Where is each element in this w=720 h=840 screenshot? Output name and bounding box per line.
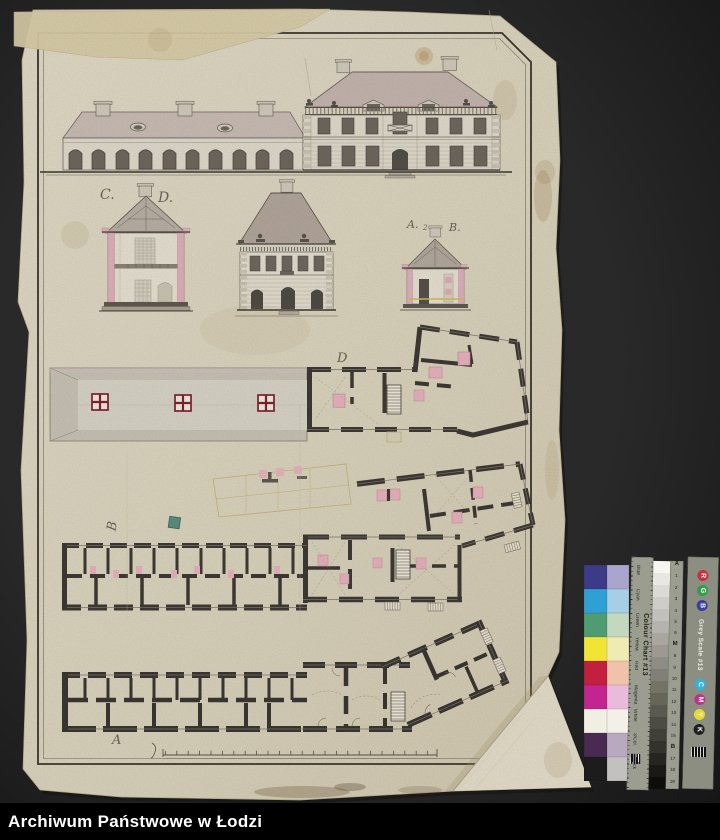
row-label: Cyan [632, 589, 640, 613]
scale-mark: 3 [669, 595, 682, 607]
archive-name: Archiwum Państwowe w Łodzi [0, 812, 262, 832]
saturated-patch-column [584, 565, 607, 781]
scale-mark: 6 [669, 629, 682, 641]
scale-mark: 4 [669, 607, 682, 619]
archival-scan-page: C. D. A. 2 B. D B A [0, 0, 720, 840]
row-label: Blue [633, 565, 641, 589]
scale-mark: 17 [666, 755, 679, 767]
scale-mark: 11 [668, 686, 681, 698]
cyan-dot-icon: C [695, 679, 706, 690]
scale-mark: 10 [668, 675, 681, 687]
scale-mark: 14 [667, 721, 680, 733]
caption-bar: Archiwum Państwowe w Łodzi [0, 803, 720, 840]
scale-mark: 8 [668, 652, 681, 664]
colour-chart-title: Colour Chart #13 [641, 613, 649, 676]
grey-scale-bar: R G B Grey Scale #13 C M Y K [682, 557, 719, 790]
row-label: Green [632, 613, 640, 637]
blue-dot-icon: B [697, 600, 708, 611]
scale-mark: 12 [667, 698, 680, 710]
patch-pale-white [607, 709, 629, 733]
patch-pale-cyan [607, 589, 629, 613]
row-label: Red [631, 661, 639, 685]
patch-pale-magenta [607, 685, 629, 709]
scale-mark: 9 [668, 664, 681, 676]
patch-yellow [584, 637, 607, 661]
black-dot-icon: K [693, 724, 704, 735]
green-dot-icon: G [697, 585, 708, 596]
barcode-icon [691, 747, 706, 757]
patch-row-labels: Blue Cyan Green Yellow Red Magenta White… [629, 565, 641, 781]
scale-mark: 1 [670, 572, 683, 584]
patch-green [584, 613, 607, 637]
patch-3col [584, 733, 607, 757]
patch-pale-yellow [607, 637, 629, 661]
scale-mark: 19 [666, 778, 679, 790]
red-dot-icon: R [697, 570, 708, 581]
scale-mark: A [670, 561, 683, 573]
scale-mark: 18 [666, 766, 679, 778]
photo-area: C. D. A. 2 B. D B A [0, 0, 720, 803]
grey-scale-title: Grey Scale #13 [696, 619, 704, 677]
yellow-dot-icon: Y [694, 709, 705, 720]
scale-mark: M [668, 641, 681, 653]
magenta-dot-icon: M [694, 694, 705, 705]
row-label: White [630, 709, 638, 733]
patch-red [584, 661, 607, 685]
patch-black [584, 757, 607, 781]
patch-pale-blue [607, 565, 629, 589]
row-label: Magenta [630, 685, 638, 709]
patch-white [584, 709, 607, 733]
scale-mark: 5 [669, 618, 682, 630]
patch-pale-black [607, 757, 629, 781]
patch-blue [584, 565, 607, 589]
patch-pale-3col [607, 733, 629, 757]
pale-patch-column [607, 565, 629, 781]
scale-mark: B [666, 743, 679, 755]
patch-pale-green [607, 613, 629, 637]
row-label: Yellow [631, 637, 639, 661]
patch-cyan [584, 589, 607, 613]
barcode-icon [630, 754, 641, 764]
scale-mark: 13 [667, 709, 680, 721]
patch-magenta [584, 685, 607, 709]
color-calibration-target: Blue Cyan Green Yellow Red Magenta White… [584, 557, 716, 790]
scale-mark: 15 [667, 732, 680, 744]
scale-mark: 2 [670, 584, 683, 596]
patch-pale-red [607, 661, 629, 685]
